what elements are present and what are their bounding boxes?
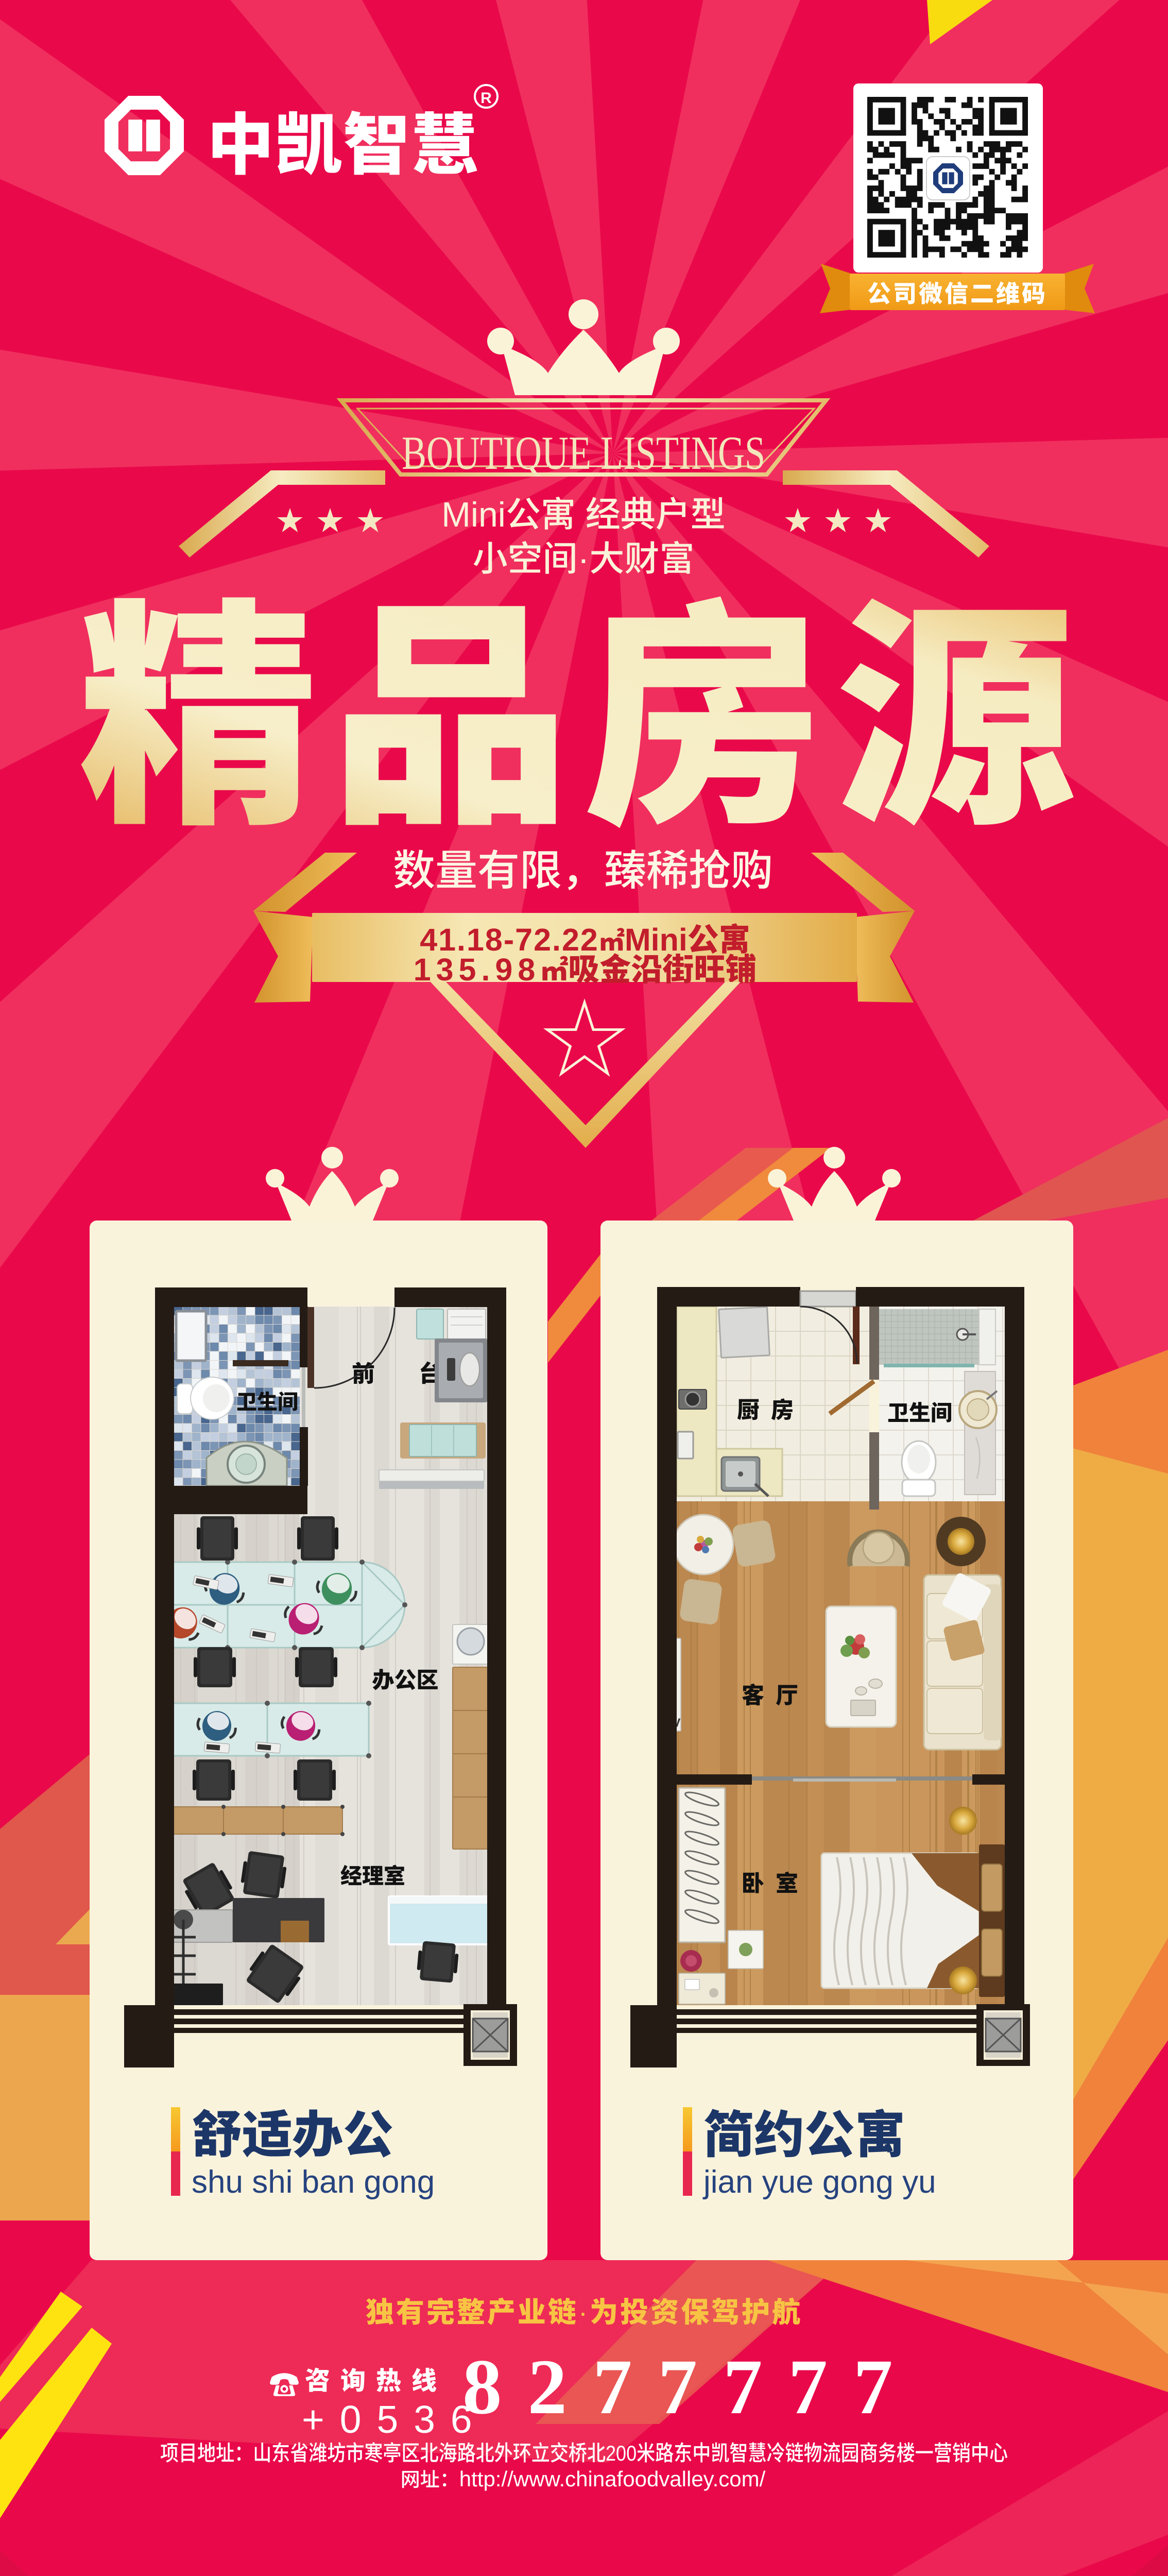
svg-text:公司微信二维码: 公司微信二维码 (867, 275, 1047, 309)
svg-text:项目地址：山东省潍坊市寒亭区北海路北外环立交桥北200米路东: 项目地址：山东省潍坊市寒亭区北海路北外环立交桥北200米路东中凯智慧冷链物流园商… (160, 2441, 1008, 2465)
svg-text:咨询热线: 咨询热线 (305, 2361, 447, 2397)
svg-text:卧室: 卧室 (742, 1865, 810, 1898)
svg-text:BOUTIQUE LISTINGS: BOUTIQUE LISTINGS (402, 427, 765, 479)
svg-text:经理室: 经理室 (340, 1859, 405, 1890)
svg-text:舒适办公: 舒适办公 (192, 2094, 393, 2167)
svg-text:厨房: 厨房 (737, 1392, 805, 1425)
svg-text:R: R (480, 90, 492, 107)
svg-text:shu shi ban gong: shu shi ban gong (192, 2164, 435, 2200)
svg-text:精品房源: 精品房源 (78, 524, 1088, 872)
svg-text:中凯智慧: 中凯智慧 (207, 91, 479, 188)
svg-text:网址：http://www.chinafoodvalley.: 网址：http://www.chinafoodvalley.com/ (401, 2464, 766, 2492)
svg-text:客厅: 客厅 (742, 1677, 810, 1710)
svg-text:jian yue gong yu: jian yue gong yu (702, 2164, 936, 2200)
svg-text:+0536: +0536 (302, 2398, 488, 2441)
svg-text:卫生间: 卫生间 (887, 1396, 952, 1427)
svg-text:数量有限，臻稀抢购: 数量有限，臻稀抢购 (393, 836, 773, 897)
svg-text:8277777: 8277777 (462, 2344, 919, 2431)
svg-text:办公区: 办公区 (372, 1663, 439, 1694)
svg-text:卫生间: 卫生间 (236, 1385, 298, 1415)
svg-text:简约公寓: 简约公寓 (703, 2094, 905, 2167)
